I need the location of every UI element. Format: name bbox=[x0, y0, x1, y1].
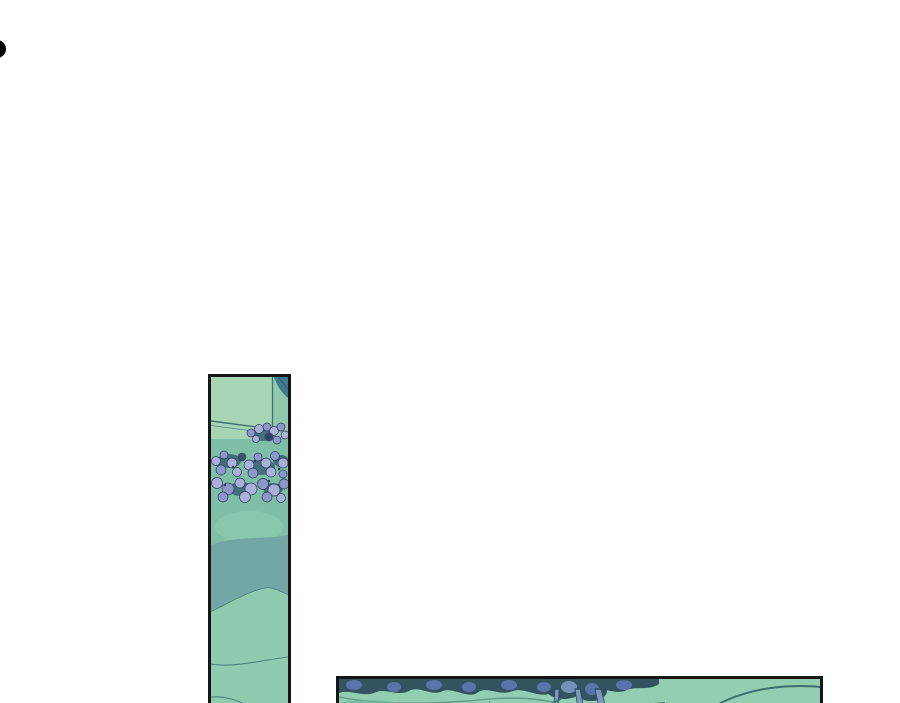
wide-panel-artwork bbox=[339, 679, 820, 703]
wide-comic-panel bbox=[336, 676, 823, 703]
comic-page bbox=[0, 0, 900, 703]
tall-panel-artwork bbox=[211, 377, 288, 703]
tall-comic-panel bbox=[208, 374, 291, 703]
partial-circle-glyph bbox=[0, 40, 6, 58]
